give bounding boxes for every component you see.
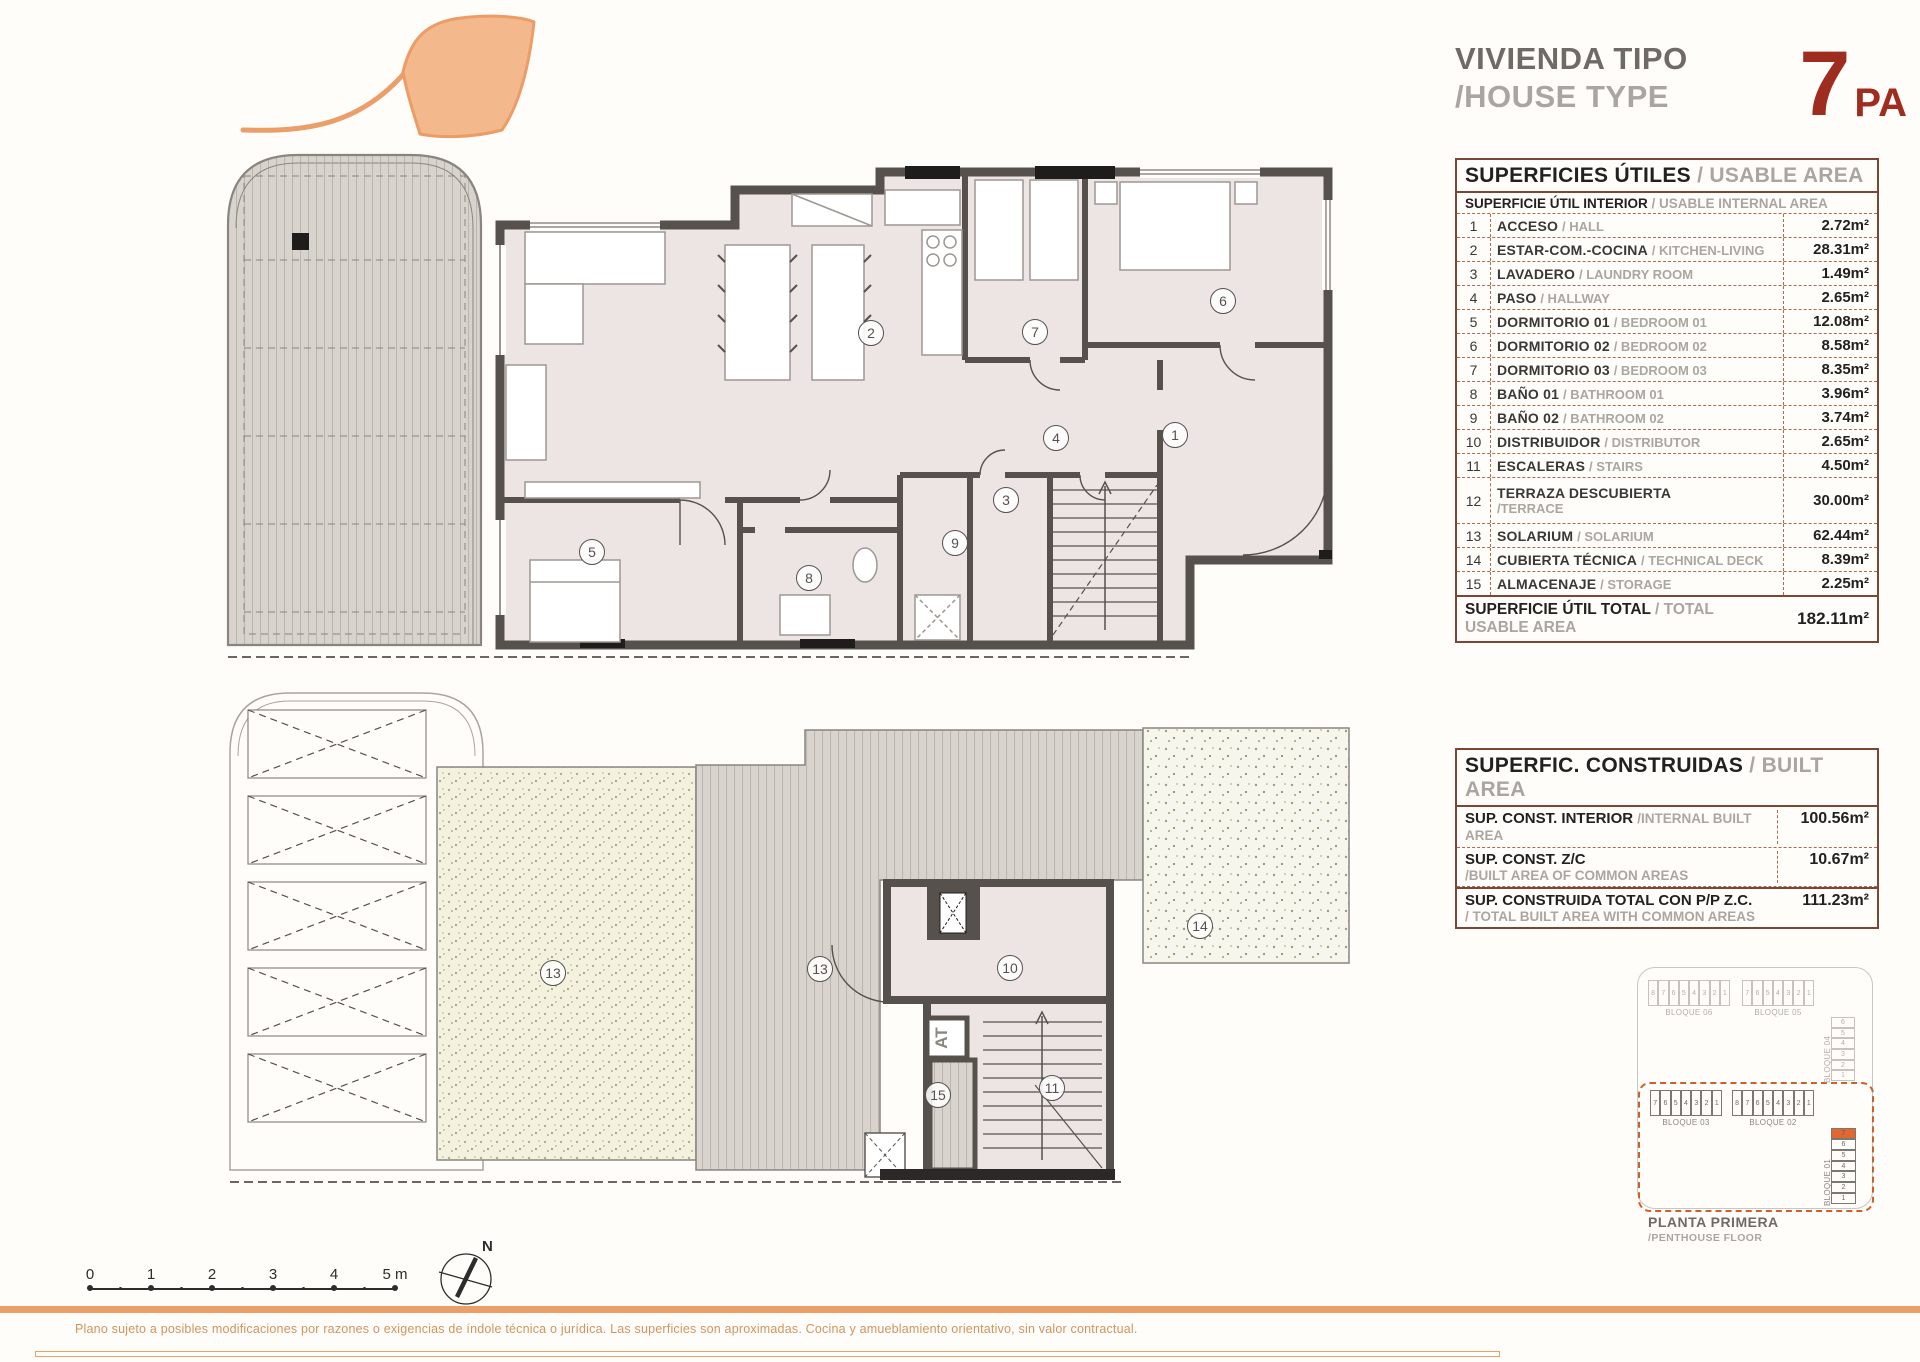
row-number: 11 (1457, 454, 1491, 477)
row-name-en: / BATHROOM 01 (1563, 387, 1664, 402)
table-row: 10DISTRIBUIDOR / DISTRIBUTOR2.65m² (1457, 430, 1877, 454)
row-name-en: / BATHROOM 02 (1563, 411, 1664, 426)
row-name-en: / TOTAL BUILT AREA WITH COMMON AREAS (1465, 909, 1769, 924)
table-row: 4PASO / HALLWAY2.65m² (1457, 286, 1877, 310)
usable-header-en: / USABLE AREA (1697, 164, 1863, 187)
row-value: 2.72m² (1783, 214, 1877, 237)
logo-swoosh-line (243, 70, 407, 130)
row-name: DISTRIBUIDOR / DISTRIBUTOR (1491, 433, 1783, 451)
table-row: 7DORMITORIO 03 / BEDROOM 038.35m² (1457, 358, 1877, 382)
unit-cell: 2 (1701, 1090, 1711, 1116)
unit-cell: 1 (1720, 980, 1730, 1006)
row-number: 9 (1457, 406, 1491, 429)
room-number-label: 14 (1187, 913, 1213, 939)
scale-major-dot (392, 1285, 398, 1291)
row-number: 1 (1457, 214, 1491, 237)
row-number: 10 (1457, 430, 1491, 453)
row-number: 5 (1457, 310, 1491, 333)
table-row: 15ALMACENAJE / STORAGE2.25m² (1457, 572, 1877, 595)
scale-bar: 012345 m (75, 1258, 445, 1303)
row-name: PASO / HALLWAY (1491, 289, 1783, 307)
row-name-en: / DISTRIBUTOR (1604, 435, 1700, 450)
usable-table-header: SUPERFICIES ÚTILES / USABLE AREA (1457, 160, 1877, 193)
row-name: DORMITORIO 02 / BEDROOM 02 (1491, 337, 1783, 355)
unit-cell: 5 (1763, 980, 1773, 1006)
row-name-es: ESTAR-COM.-COCINA (1497, 242, 1648, 258)
unit-cell: 4 (1681, 1090, 1691, 1116)
house-type-code: 7 PA (1799, 40, 1907, 127)
usable-table-rows: 1ACCESO / HALL2.72m²2ESTAR-COM.-COCINA /… (1457, 214, 1877, 595)
block-label: BLOQUE 02 (1732, 1118, 1814, 1127)
unit-cell: 6 (1660, 1090, 1670, 1116)
row-name-es: TERRAZA DESCUBIERTA (1497, 485, 1671, 501)
unit-cell: 6 (1753, 1090, 1763, 1116)
unit-cell: 3 (1783, 980, 1793, 1006)
block-bloque-06: 87654321BLOQUE 06 (1648, 980, 1730, 1017)
room-number-label: 8 (796, 565, 822, 591)
legal-disclaimer: Plano sujeto a posibles modificaciones p… (75, 1322, 1775, 1336)
unit-cell: 5 (1763, 1090, 1773, 1116)
row-number: 12 (1457, 478, 1491, 523)
unit-cell: 6 (1831, 1139, 1856, 1150)
unit-cell: 3 (1831, 1049, 1855, 1060)
room-number-label: 7 (1022, 319, 1048, 345)
unit-cell: 7 (1742, 980, 1752, 1006)
unit-cell: 7 (1742, 1090, 1752, 1116)
scale-tick-label: 4 (330, 1266, 338, 1283)
block-label: BLOQUE 05 (1742, 1008, 1814, 1017)
unit-cell: 4 (1689, 980, 1699, 1006)
block-units: 7654321 (1650, 1090, 1722, 1116)
row-value: 8.39m² (1783, 548, 1877, 571)
room-number-label: 13 (807, 956, 833, 982)
row-name-en: /BUILT AREA OF COMMON AREAS (1465, 868, 1769, 883)
room-number-label: 2 (858, 320, 884, 346)
row-value: 100.56m² (1777, 810, 1877, 844)
row-value: 2.65m² (1783, 286, 1877, 309)
block-label: BLOQUE 03 (1650, 1118, 1722, 1127)
row-name-en: / STAIRS (1589, 459, 1643, 474)
scale-tick-label: 3 (269, 1266, 277, 1283)
type-number: 7 (1799, 42, 1850, 127)
row-name-es: SUP. CONST. INTERIOR (1465, 810, 1633, 827)
row-name-es: BAÑO 01 (1497, 386, 1559, 402)
row-value: 30.00m² (1783, 478, 1877, 523)
unit-cell: 4 (1773, 980, 1783, 1006)
unit-cell: 5 (1679, 980, 1689, 1006)
row-name: SUP. CONST. Z/C /BUILT AREA OF COMMON AR… (1457, 851, 1777, 883)
row-value: 1.49m² (1783, 262, 1877, 285)
scale-major-dot (87, 1285, 93, 1291)
row-number: 7 (1457, 358, 1491, 381)
row-name-en: / BEDROOM 02 (1614, 339, 1707, 354)
row-name: BAÑO 02 / BATHROOM 02 (1491, 409, 1783, 427)
row-number: 6 (1457, 334, 1491, 357)
table-row: SUP. CONSTRUIDA TOTAL CON P/P Z.C. / TOT… (1457, 887, 1877, 927)
title-es: VIVIENDA TIPO (1455, 40, 1688, 78)
row-value: 4.50m² (1783, 454, 1877, 477)
unit-cell: 7 (1650, 1090, 1660, 1116)
row-name-en: / BEDROOM 03 (1614, 363, 1707, 378)
scale-major-dot (270, 1285, 276, 1291)
block-label: BLOQUE 04 (1823, 1036, 1832, 1083)
row-name-es: DORMITORIO 02 (1497, 338, 1610, 354)
house-type-title: VIVIENDA TIPO /HOUSE TYPE (1455, 40, 1688, 116)
row-name-es: SUP. CONST. Z/C (1465, 851, 1586, 868)
unit-cell: 6 (1831, 1017, 1855, 1028)
row-name: ESTAR-COM.-COCINA / KITCHEN-LIVING (1491, 241, 1783, 259)
row-name: DORMITORIO 03 / BEDROOM 03 (1491, 361, 1783, 379)
row-value: 12.08m² (1783, 310, 1877, 333)
room-number-label: 9 (942, 530, 968, 556)
unit-cell: 2 (1831, 1060, 1855, 1071)
unit-cell: 2 (1794, 1090, 1804, 1116)
row-name-en: / HALL (1562, 219, 1604, 234)
north-label: N (482, 1238, 493, 1255)
unit-cell: 1 (1831, 1070, 1855, 1081)
block-bloque-02: 87654321BLOQUE 02 (1732, 1090, 1814, 1127)
row-value: 2.25m² (1783, 572, 1877, 595)
unit-cell: 3 (1831, 1171, 1856, 1182)
built-area-table: SUPERFIC. CONSTRUIDAS / BUILT AREA SUP. … (1455, 748, 1879, 929)
block-units: 87654321 (1732, 1090, 1814, 1116)
built-table-header: SUPERFIC. CONSTRUIDAS / BUILT AREA (1457, 750, 1877, 807)
row-name-es: SOLARIUM (1497, 528, 1573, 544)
row-value: 28.31m² (1783, 238, 1877, 261)
brand-logo (235, 8, 545, 143)
row-number: 2 (1457, 238, 1491, 261)
room-number-label: 6 (1210, 288, 1236, 314)
block-units: 7654321 (1742, 980, 1814, 1006)
scale-minor-dot (241, 1287, 244, 1290)
site-block-diagram: 87654321BLOQUE 067654321BLOQUE 05654321B… (1628, 962, 1880, 1262)
unit-cell: 7 (1658, 980, 1668, 1006)
room-number-label: 15 (925, 1082, 951, 1108)
scale-tick-label: 1 (147, 1266, 155, 1283)
north-arrow: N (430, 1235, 510, 1315)
unit-cell: 1 (1804, 1090, 1814, 1116)
usable-area-table: SUPERFICIES ÚTILES / USABLE AREA SUPERFI… (1455, 158, 1879, 643)
table-row: 9BAÑO 02 / BATHROOM 023.74m² (1457, 406, 1877, 430)
block-units: 654321 (1831, 1017, 1855, 1081)
scale-tick-label: 0 (86, 1266, 94, 1283)
row-name-es: SUP. CONSTRUIDA TOTAL CON P/P Z.C. (1465, 892, 1752, 909)
unit-cell: 3 (1783, 1090, 1793, 1116)
room-number-label: 5 (579, 539, 605, 565)
row-name-es: ALMACENAJE (1497, 576, 1596, 592)
unit-cell: 2 (1831, 1182, 1856, 1193)
row-value: 8.35m² (1783, 358, 1877, 381)
scale-tick-label: 5 m (382, 1266, 407, 1283)
scale-minor-dot (363, 1287, 366, 1290)
row-name-es: DORMITORIO 01 (1497, 314, 1610, 330)
unit-cell: 2 (1793, 980, 1803, 1006)
row-number: 15 (1457, 572, 1491, 595)
scale-major-dot (209, 1285, 215, 1291)
footer-accent-band (0, 1306, 1920, 1313)
title-block: VIVIENDA TIPO /HOUSE TYPE 7 PA (1455, 40, 1907, 140)
title-en: /HOUSE TYPE (1455, 78, 1688, 116)
row-name: BAÑO 01 / BATHROOM 01 (1491, 385, 1783, 403)
row-name: SUP. CONST. INTERIOR /INTERNAL BUILT ARE… (1457, 810, 1777, 844)
row-name-en: / TECHNICAL DECK (1641, 553, 1764, 568)
unit-cell: 1 (1804, 980, 1814, 1006)
row-value: 8.58m² (1783, 334, 1877, 357)
row-name: LAVADERO / LAUNDRY ROOM (1491, 265, 1783, 283)
row-name: CUBIERTA TÉCNICA / TECHNICAL DECK (1491, 551, 1783, 569)
built-table-rows: SUP. CONST. INTERIOR /INTERNAL BUILT ARE… (1457, 807, 1877, 927)
room-number-label: 3 (993, 487, 1019, 513)
room-number-label: 11 (1039, 1075, 1065, 1101)
table-row: 5DORMITORIO 01 / BEDROOM 0112.08m² (1457, 310, 1877, 334)
row-name-en: / HALLWAY (1540, 291, 1610, 306)
table-row: 3LAVADERO / LAUNDRY ROOM1.49m² (1457, 262, 1877, 286)
block-label: BLOQUE 06 (1648, 1008, 1730, 1017)
row-name: SUP. CONSTRUIDA TOTAL CON P/P Z.C. / TOT… (1457, 892, 1777, 924)
unit-cell: 6 (1752, 980, 1762, 1006)
row-name-en: / LAUNDRY ROOM (1579, 267, 1693, 282)
unit-cell: 7 (1831, 1128, 1856, 1139)
row-name-es: ACCESO (1497, 218, 1558, 234)
usable-header-es: SUPERFICIES ÚTILES (1465, 164, 1691, 187)
scale-minor-dot (119, 1287, 122, 1290)
unit-cell: 3 (1699, 980, 1709, 1006)
scale-minor-dot (302, 1287, 305, 1290)
unit-cell: 6 (1669, 980, 1679, 1006)
table-row: SUP. CONST. INTERIOR /INTERNAL BUILT ARE… (1457, 807, 1877, 848)
row-number: 13 (1457, 524, 1491, 547)
usable-table-subheader: SUPERFICIE ÚTIL INTERIOR / USABLE INTERN… (1457, 193, 1877, 214)
block-bloque-01: 7654321BLOQUE 01 (1831, 1128, 1856, 1204)
block-bloque-05: 7654321BLOQUE 05 (1742, 980, 1814, 1017)
row-name-es: DISTRIBUIDOR (1497, 434, 1601, 450)
row-number: 8 (1457, 382, 1491, 405)
table-row: 12TERRAZA DESCUBIERTA /TERRACE30.00m² (1457, 478, 1877, 524)
usable-total-value: 182.11m² (1777, 609, 1877, 629)
usable-total-label-es: SUPERFICIE ÚTIL TOTAL (1465, 601, 1651, 618)
row-name-es: CUBIERTA TÉCNICA (1497, 552, 1637, 568)
row-value: 3.74m² (1783, 406, 1877, 429)
row-number: 4 (1457, 286, 1491, 309)
row-value: 2.65m² (1783, 430, 1877, 453)
row-name-es: PASO (1497, 290, 1536, 306)
row-name-en: / KITCHEN-LIVING (1652, 243, 1765, 258)
table-row: 11ESCALERAS / STAIRS4.50m² (1457, 454, 1877, 478)
unit-cell: 8 (1648, 980, 1658, 1006)
row-name-en: / BEDROOM 01 (1614, 315, 1707, 330)
unit-cell: 4 (1831, 1038, 1855, 1049)
unit-cell: 5 (1671, 1090, 1681, 1116)
unit-cell: 4 (1773, 1090, 1783, 1116)
row-name: ACCESO / HALL (1491, 217, 1783, 235)
scale-major-dot (148, 1285, 154, 1291)
room-number-label: 13 (540, 960, 566, 986)
table-row: SUP. CONST. Z/C /BUILT AREA OF COMMON AR… (1457, 848, 1877, 887)
row-number: 3 (1457, 262, 1491, 285)
upper-plan-room-labels: 276143985 (180, 130, 1350, 670)
table-row: 14CUBIERTA TÉCNICA / TECHNICAL DECK8.39m… (1457, 548, 1877, 572)
usable-table-total-row: SUPERFICIE ÚTIL TOTAL / TOTAL USABLE ARE… (1457, 595, 1877, 641)
row-name-es: DORMITORIO 03 (1497, 362, 1610, 378)
block-bloque-04: 654321BLOQUE 04 (1831, 1017, 1855, 1081)
site-caption-en: /PENTHOUSE FLOOR (1648, 1232, 1762, 1244)
table-row: 1ACCESO / HALL2.72m² (1457, 214, 1877, 238)
scale-major-dot (331, 1285, 337, 1291)
room-number-label: 1 (1162, 422, 1188, 448)
logo-ribbon-shape (403, 16, 534, 136)
block-bloque-03: 7654321BLOQUE 03 (1650, 1090, 1722, 1127)
scale-minor-dot (180, 1287, 183, 1290)
row-value: 62.44m² (1783, 524, 1877, 547)
row-name-es: BAÑO 02 (1497, 410, 1559, 426)
row-name-es: LAVADERO (1497, 266, 1575, 282)
table-row: 2ESTAR-COM.-COCINA / KITCHEN-LIVING28.31… (1457, 238, 1877, 262)
row-value: 3.96m² (1783, 382, 1877, 405)
unit-cell: 2 (1710, 980, 1720, 1006)
row-name: TERRAZA DESCUBIERTA /TERRACE (1491, 484, 1783, 517)
unit-cell: 3 (1691, 1090, 1701, 1116)
block-label: BLOQUE 01 (1823, 1159, 1832, 1206)
scale-tick-label: 2 (208, 1266, 216, 1283)
row-name-en: / SOLARIUM (1577, 529, 1654, 544)
lower-plan-room-labels: 131314101115 (190, 690, 1370, 1190)
row-name-en: /TERRACE (1497, 501, 1777, 516)
row-number: 14 (1457, 548, 1491, 571)
row-name: DORMITORIO 01 / BEDROOM 01 (1491, 313, 1783, 331)
unit-cell: 4 (1831, 1161, 1856, 1172)
table-row: 8BAÑO 01 / BATHROOM 013.96m² (1457, 382, 1877, 406)
block-units: 7654321 (1831, 1128, 1856, 1204)
unit-cell: 1 (1712, 1090, 1722, 1116)
row-value: 10.67m² (1777, 851, 1877, 883)
row-name-es: ESCALERAS (1497, 458, 1585, 474)
row-name: ESCALERAS / STAIRS (1491, 457, 1783, 475)
built-header-es: SUPERFIC. CONSTRUIDAS (1465, 754, 1743, 777)
unit-cell: 5 (1831, 1028, 1855, 1039)
table-row: 13SOLARIUM / SOLARIUM62.44m² (1457, 524, 1877, 548)
block-units: 87654321 (1648, 980, 1730, 1006)
unit-cell: 8 (1732, 1090, 1742, 1116)
unit-cell: 5 (1831, 1150, 1856, 1161)
room-number-label: 10 (997, 955, 1023, 981)
row-name: ALMACENAJE / STORAGE (1491, 575, 1783, 593)
row-value: 111.23m² (1777, 892, 1877, 924)
footer-bottom-rule (35, 1351, 1500, 1357)
unit-cell: 1 (1831, 1193, 1856, 1204)
type-suffix: PA (1854, 83, 1907, 127)
table-row: 6DORMITORIO 02 / BEDROOM 028.58m² (1457, 334, 1877, 358)
row-name: SOLARIUM / SOLARIUM (1491, 527, 1783, 545)
site-caption-es: PLANTA PRIMERA (1648, 1214, 1779, 1230)
room-number-label: 4 (1043, 425, 1069, 451)
row-name-en: / STORAGE (1600, 577, 1671, 592)
